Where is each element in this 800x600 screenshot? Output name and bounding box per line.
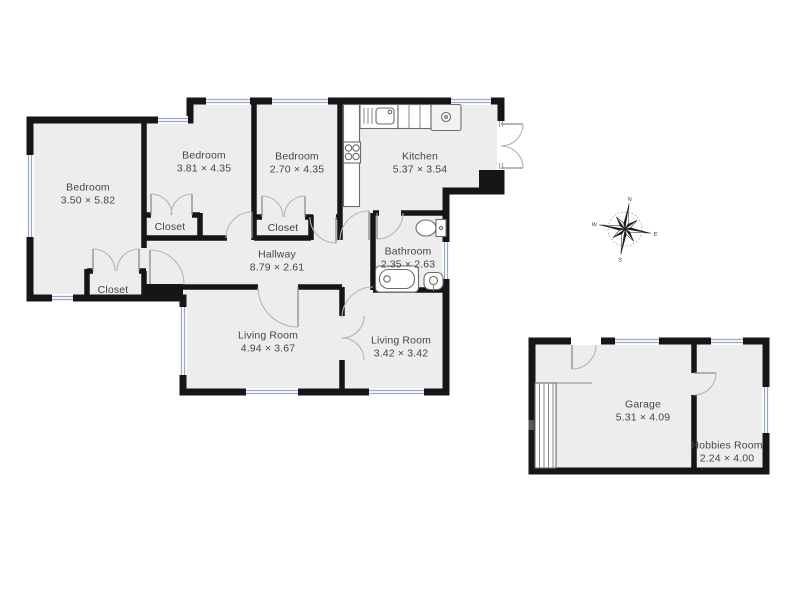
room-name: Bedroom bbox=[270, 151, 325, 164]
room-name: Closet bbox=[268, 222, 299, 235]
room-dimensions: 5.37 × 3.54 bbox=[393, 163, 448, 176]
room-label-living-room-9: Living Room4.94 × 3.67 bbox=[238, 330, 298, 355]
room-label-kitchen-3: Kitchen5.37 × 3.54 bbox=[393, 151, 448, 176]
room-label-hobbies-room-12: Hobbies Room2.24 × 4.00 bbox=[691, 440, 762, 465]
room-dimensions: 3.81 × 4.35 bbox=[177, 162, 232, 175]
room-name: Hallway bbox=[250, 249, 305, 262]
room-dimensions: 3.50 × 5.82 bbox=[61, 194, 116, 207]
room-name: Hobbies Room bbox=[691, 440, 762, 453]
room-labels: Bedroom3.50 × 5.82Bedroom3.81 × 4.35Bedr… bbox=[0, 0, 800, 600]
room-name: Bedroom bbox=[61, 182, 116, 195]
room-name: Living Room bbox=[238, 330, 298, 343]
room-dimensions: 8.79 × 2.61 bbox=[250, 261, 305, 274]
room-name: Bedroom bbox=[177, 150, 232, 163]
room-dimensions: 4.94 × 3.67 bbox=[238, 342, 298, 355]
room-label-garage-11: Garage5.31 × 4.09 bbox=[616, 399, 671, 424]
room-label-bedroom-2: Bedroom2.70 × 4.35 bbox=[270, 151, 325, 176]
room-dimensions: 3.42 × 3.42 bbox=[371, 347, 431, 360]
room-name: Closet bbox=[155, 221, 186, 234]
room-name: Kitchen bbox=[393, 151, 448, 164]
room-dimensions: 2.70 × 4.35 bbox=[270, 163, 325, 176]
room-name: Closet bbox=[98, 284, 129, 297]
room-label-hallway-7: Hallway8.79 × 2.61 bbox=[250, 249, 305, 274]
room-name: Garage bbox=[616, 399, 671, 412]
room-name: Living Room bbox=[371, 335, 431, 348]
room-label-bedroom-1: Bedroom3.81 × 4.35 bbox=[177, 150, 232, 175]
room-label-bedroom-0: Bedroom3.50 × 5.82 bbox=[61, 182, 116, 207]
room-dimensions: 5.31 × 4.09 bbox=[616, 411, 671, 424]
room-dimensions: 2.35 × 2.63 bbox=[381, 258, 436, 271]
room-label-living-room-10: Living Room3.42 × 3.42 bbox=[371, 335, 431, 360]
room-label-bathroom-8: Bathroom2.35 × 2.63 bbox=[381, 246, 436, 271]
room-dimensions: 2.24 × 4.00 bbox=[691, 452, 762, 465]
room-label-closet-4: Closet bbox=[155, 221, 186, 234]
room-name: Bathroom bbox=[381, 246, 436, 259]
room-label-closet-6: Closet bbox=[98, 284, 129, 297]
floor-plan: N E S W Bedroom3.50 × 5.82Bedroom3.81 × … bbox=[0, 0, 800, 600]
room-label-closet-5: Closet bbox=[268, 222, 299, 235]
